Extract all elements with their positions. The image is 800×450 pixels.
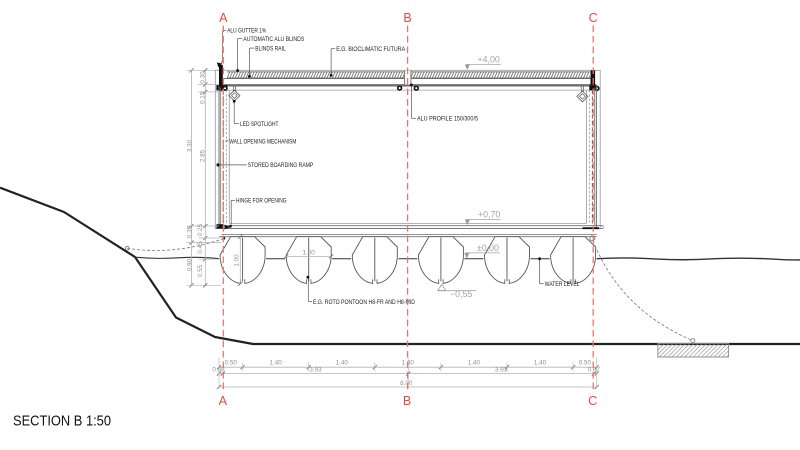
svg-text:1.40: 1.40 [534, 359, 547, 366]
svg-text:1.40: 1.40 [269, 359, 282, 366]
svg-text:WATER LEVEL: WATER LEVEL [545, 281, 580, 288]
svg-text:0.07: 0.07 [588, 366, 601, 373]
svg-text:0.90: 0.90 [187, 258, 194, 271]
svg-text:3.93: 3.93 [309, 366, 322, 373]
svg-text:1.40: 1.40 [468, 359, 481, 366]
svg-text:0.25: 0.25 [197, 223, 204, 236]
svg-text:B: B [403, 11, 411, 25]
svg-text:0.50: 0.50 [225, 359, 238, 366]
svg-text:0.15: 0.15 [200, 91, 207, 104]
svg-text:1.40: 1.40 [336, 359, 349, 366]
svg-text:STORED BOARDING RAMP: STORED BOARDING RAMP [248, 162, 313, 169]
svg-text:B: B [403, 394, 411, 408]
svg-text:1.00: 1.00 [302, 249, 315, 256]
svg-text:LED SPOTLIGHT: LED SPOTLIGHT [240, 121, 279, 128]
svg-text:0.35: 0.35 [187, 225, 194, 238]
svg-text:HINGE FOR OPENING: HINGE FOR OPENING [236, 198, 287, 205]
svg-text:SECTION B 1:50: SECTION B 1:50 [13, 414, 111, 430]
svg-text:C: C [588, 394, 597, 408]
svg-text:E.G. ROTO PONTOON H8-FR AND H8: E.G. ROTO PONTOON H8-FR AND H8-MID [313, 299, 415, 306]
svg-text:2.85: 2.85 [200, 149, 207, 162]
svg-text:0.50: 0.50 [579, 359, 592, 366]
svg-text:A: A [219, 394, 228, 408]
svg-text:E.G. BIOCLIMATIC FUTURA: E.G. BIOCLIMATIC FUTURA [336, 46, 406, 53]
svg-text:WALL OPENING MECHANISM: WALL OPENING MECHANISM [229, 138, 296, 145]
svg-text:BLINDS RAIL: BLINDS RAIL [255, 45, 286, 52]
svg-text:ALU GUTTER 1%: ALU GUTTER 1% [227, 28, 266, 35]
svg-text:0.55: 0.55 [197, 264, 204, 277]
svg-text:A: A [219, 11, 228, 25]
svg-text:AUTOMATIC ALU BLINDS: AUTOMATIC ALU BLINDS [243, 36, 304, 43]
svg-text:+0,70: +0,70 [478, 210, 500, 220]
svg-text:ALU PROFILE 150/300/5: ALU PROFILE 150/300/5 [417, 116, 478, 123]
svg-text:1.00: 1.00 [234, 254, 241, 267]
svg-text:8.00: 8.00 [400, 380, 413, 387]
svg-text:3.30: 3.30 [187, 139, 194, 152]
svg-text:0.30: 0.30 [200, 71, 207, 84]
svg-text:C: C [589, 11, 598, 25]
svg-text:3.93: 3.93 [495, 366, 508, 373]
svg-text:+4,00: +4,00 [478, 54, 500, 64]
svg-text:0.45: 0.45 [197, 241, 204, 254]
svg-text:±0,00: ±0,00 [477, 243, 499, 253]
